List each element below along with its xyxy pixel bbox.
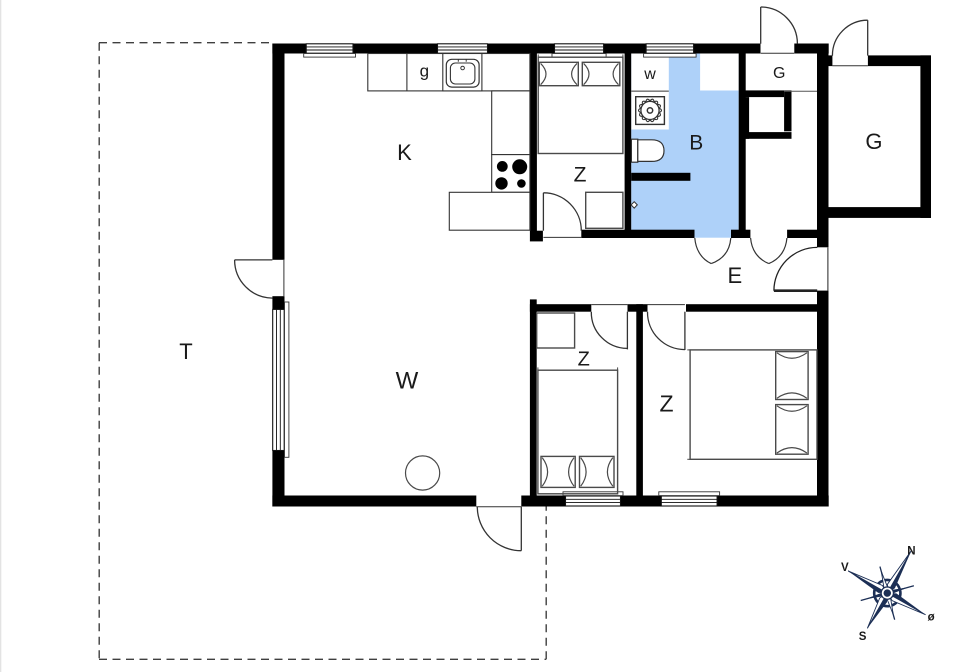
- svg-text:S: S: [859, 631, 867, 643]
- svg-text:T: T: [179, 339, 192, 364]
- svg-text:K: K: [397, 140, 412, 165]
- svg-text:ø: ø: [928, 612, 935, 624]
- svg-text:W: W: [396, 367, 419, 394]
- svg-text:Z: Z: [574, 164, 587, 187]
- svg-text:Z: Z: [659, 391, 673, 417]
- svg-text:G: G: [773, 65, 785, 82]
- svg-text:E: E: [728, 263, 743, 288]
- svg-text:Z: Z: [578, 348, 590, 370]
- svg-text:N: N: [907, 546, 915, 558]
- svg-text:V: V: [841, 562, 849, 574]
- svg-text:g: g: [420, 61, 429, 80]
- svg-text:w: w: [643, 66, 656, 83]
- svg-text:G: G: [865, 129, 882, 154]
- svg-text:B: B: [689, 132, 703, 155]
